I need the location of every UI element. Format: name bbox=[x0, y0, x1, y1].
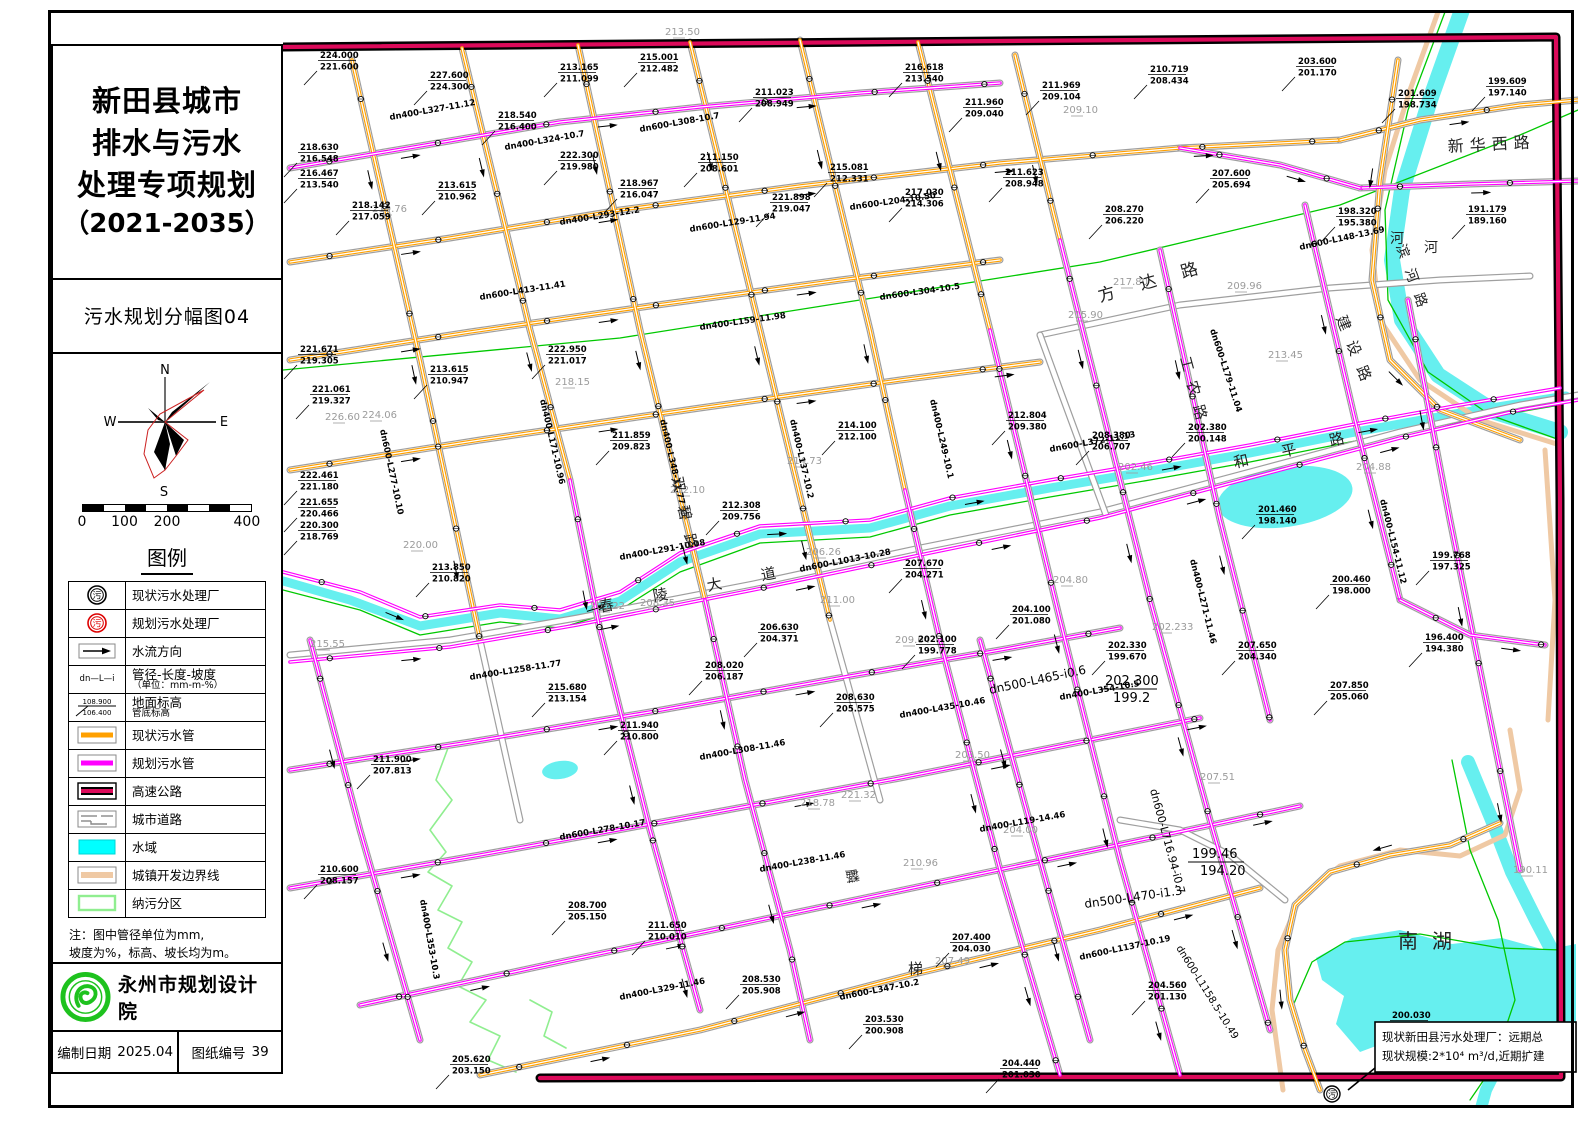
title-block: 新田县城市 排水与污水 处理专项规划 （2021-2035） bbox=[53, 46, 281, 280]
water-icon bbox=[69, 834, 126, 861]
sheet-number: 39 bbox=[252, 1044, 269, 1060]
title-line-years: （2021-2035） bbox=[53, 206, 281, 244]
legend-label-text: 高速公路 bbox=[132, 785, 265, 798]
legend-row: dn—L—i管径-长度-坡度（单位：mm-m-%） bbox=[69, 666, 265, 694]
svg-text:污: 污 bbox=[92, 618, 101, 630]
scale-label-200: 200 bbox=[154, 514, 181, 530]
legend-label-text: 现状污水管 bbox=[132, 729, 265, 742]
legend-row: 108.900106.400地面标高管底标高 bbox=[69, 694, 265, 722]
legend-label-text: 地面标高 bbox=[132, 696, 265, 709]
plan-sheet: 213.50209.10219.76218.15226.60224.06220.… bbox=[0, 0, 1588, 1122]
scale-segment bbox=[188, 505, 209, 511]
legend-label: 城市道路 bbox=[126, 806, 265, 833]
pipe-planned-icon bbox=[69, 750, 126, 777]
legend-label: 现状污水处理厂 bbox=[126, 582, 265, 609]
svg-text:污: 污 bbox=[92, 590, 101, 602]
scale-segment bbox=[83, 505, 104, 511]
flow-arrow-icon bbox=[69, 638, 126, 665]
legend-section: N W E S 0 100 200 400 bbox=[53, 354, 281, 964]
title-line: 排水与污水 bbox=[53, 122, 281, 164]
sheet-caption: 图纸编号 bbox=[192, 1042, 246, 1062]
legend-label: 纳污分区 bbox=[126, 890, 265, 917]
logo-swoosh bbox=[76, 986, 95, 1006]
legend-label-text: 水流方向 bbox=[132, 645, 265, 658]
legend-label-text: 现状污水处理厂 bbox=[132, 589, 265, 602]
legend-label-subtext: （单位：mm-m-%） bbox=[132, 681, 265, 691]
note-line: 注：图中管径单位为mm, bbox=[69, 926, 265, 944]
city-road-icon bbox=[69, 806, 126, 833]
legend-label-text: 城市道路 bbox=[132, 813, 265, 826]
note-line: 坡度为%，标高、坡长均为m。 bbox=[69, 944, 265, 962]
svg-text:106.400: 106.400 bbox=[83, 709, 112, 717]
legend-label: 水域 bbox=[126, 834, 265, 861]
compass-s: S bbox=[160, 485, 168, 500]
legend-label-subtext: 管底标高 bbox=[132, 709, 265, 719]
org-logo bbox=[59, 970, 112, 1024]
scale-segment bbox=[209, 505, 230, 511]
scale-segment bbox=[167, 505, 188, 511]
scale-segment bbox=[125, 505, 146, 511]
legend-label-text: 管径-长度-坡度 bbox=[132, 668, 265, 681]
side-panel: 新田县城市 排水与污水 处理专项规划 （2021-2035） 污水规划分幅图04… bbox=[51, 44, 283, 1074]
scale-segment bbox=[104, 505, 125, 511]
legend-label: 水流方向 bbox=[126, 638, 265, 665]
legend-label-text: 纳污分区 bbox=[132, 897, 265, 910]
legend-row: 纳污分区 bbox=[69, 890, 265, 917]
org-block: 永州市规划设计院 bbox=[53, 964, 281, 1032]
legend-label: 管径-长度-坡度（单位：mm-m-%） bbox=[126, 666, 265, 693]
legend-label-text: 水域 bbox=[132, 841, 265, 854]
legend-label: 地面标高管底标高 bbox=[126, 694, 265, 721]
legend-title: 图例 bbox=[141, 542, 193, 575]
compass-w: W bbox=[104, 415, 117, 430]
legend-row: 城市道路 bbox=[69, 806, 265, 834]
boundary-icon bbox=[69, 862, 126, 889]
footer-row: 编制日期 2025.04 图纸编号 39 bbox=[53, 1032, 281, 1072]
org-name: 永州市规划设计院 bbox=[118, 970, 275, 1024]
compass-e: E bbox=[220, 415, 228, 430]
subtitle-block: 污水规划分幅图04 bbox=[53, 280, 281, 354]
legend-label-text: 规划污水管 bbox=[132, 757, 265, 770]
legend-row: 污规划污水处理厂 bbox=[69, 610, 265, 638]
legend-row: 水流方向 bbox=[69, 638, 265, 666]
scale-label-400: 400 bbox=[234, 514, 261, 530]
title-line: 处理专项规划 bbox=[53, 164, 281, 206]
pipe-spec-icon: dn—L—i bbox=[69, 666, 126, 693]
pipe-existing-icon bbox=[69, 722, 126, 749]
scale-label-0: 0 bbox=[78, 514, 87, 530]
elevation-icon: 108.900106.400 bbox=[69, 694, 126, 721]
legend-row: 水域 bbox=[69, 834, 265, 862]
compass-n: N bbox=[160, 363, 170, 378]
highway-icon bbox=[69, 778, 126, 805]
map-notes: 注：图中管径单位为mm, 坡度为%，标高、坡长均为m。 bbox=[69, 926, 265, 962]
sheet-subtitle: 污水规划分幅图04 bbox=[84, 302, 250, 329]
legend-label-text: 城镇开发边界线 bbox=[132, 869, 265, 882]
legend-label-text: 规划污水处理厂 bbox=[132, 617, 265, 630]
plant-planned-icon: 污 bbox=[69, 610, 126, 637]
legend-label: 现状污水管 bbox=[126, 722, 265, 749]
title-line: 新田县城市 bbox=[53, 80, 281, 122]
legend-row: 现状污水管 bbox=[69, 722, 265, 750]
footer-sheet-cell: 图纸编号 39 bbox=[177, 1032, 281, 1072]
legend-table: 污现状污水处理厂污规划污水处理厂水流方向dn—L—i管径-长度-坡度（单位：mm… bbox=[68, 581, 266, 918]
svg-text:108.900: 108.900 bbox=[83, 698, 112, 706]
sewage-zone-icon bbox=[69, 890, 126, 917]
legend-label: 高速公路 bbox=[126, 778, 265, 805]
legend-row: 污现状污水处理厂 bbox=[69, 582, 265, 610]
legend-label: 规划污水管 bbox=[126, 750, 265, 777]
legend-row: 规划污水管 bbox=[69, 750, 265, 778]
legend-label: 城镇开发边界线 bbox=[126, 862, 265, 889]
compass-rose: N W E S bbox=[92, 360, 242, 500]
scale-label-100: 100 bbox=[111, 514, 138, 530]
date-value: 2025.04 bbox=[117, 1044, 173, 1060]
scale-segment bbox=[230, 505, 251, 511]
scale-segment bbox=[146, 505, 167, 511]
compass-needle-nw bbox=[148, 408, 165, 422]
legend-label: 规划污水处理厂 bbox=[126, 610, 265, 637]
plant-existing-icon: 污 bbox=[69, 582, 126, 609]
footer-date-cell: 编制日期 2025.04 bbox=[53, 1032, 177, 1072]
legend-row: 高速公路 bbox=[69, 778, 265, 806]
date-caption: 编制日期 bbox=[57, 1042, 111, 1062]
scale-bar: 0 100 200 400 bbox=[82, 504, 252, 538]
legend-row: 城镇开发边界线 bbox=[69, 862, 265, 890]
